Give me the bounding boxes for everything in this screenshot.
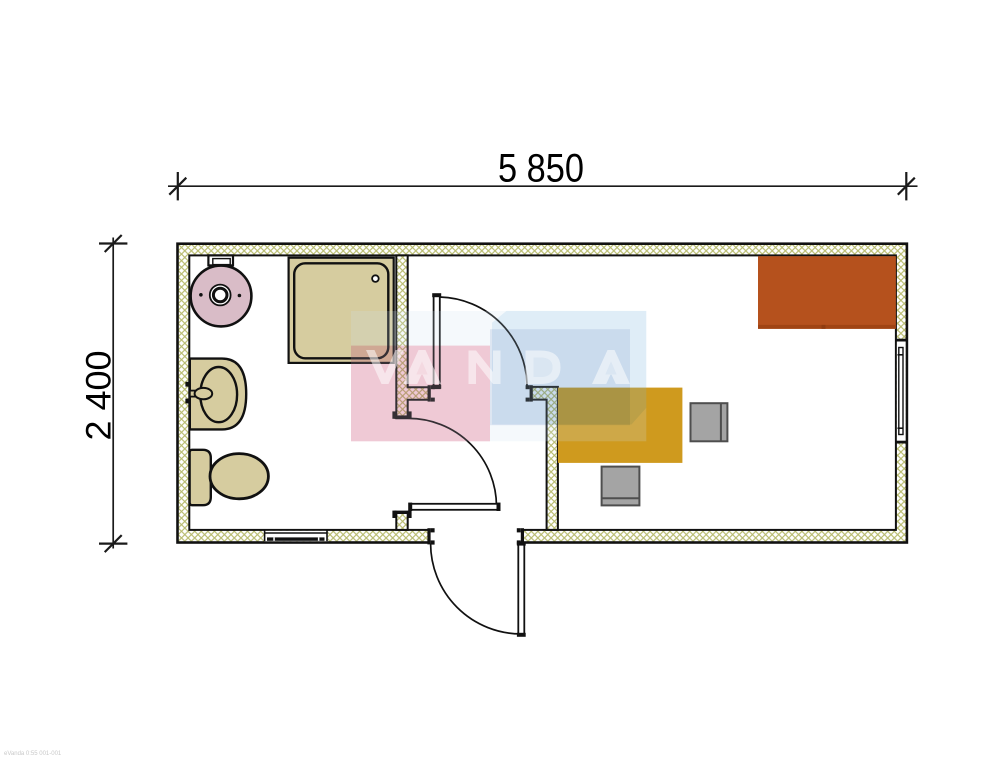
svg-text:eVanda 0:55 001-001: eVanda 0:55 001-001 [4, 751, 62, 757]
svg-text:2 400: 2 400 [80, 351, 119, 441]
svg-text:5 850: 5 850 [498, 147, 584, 191]
